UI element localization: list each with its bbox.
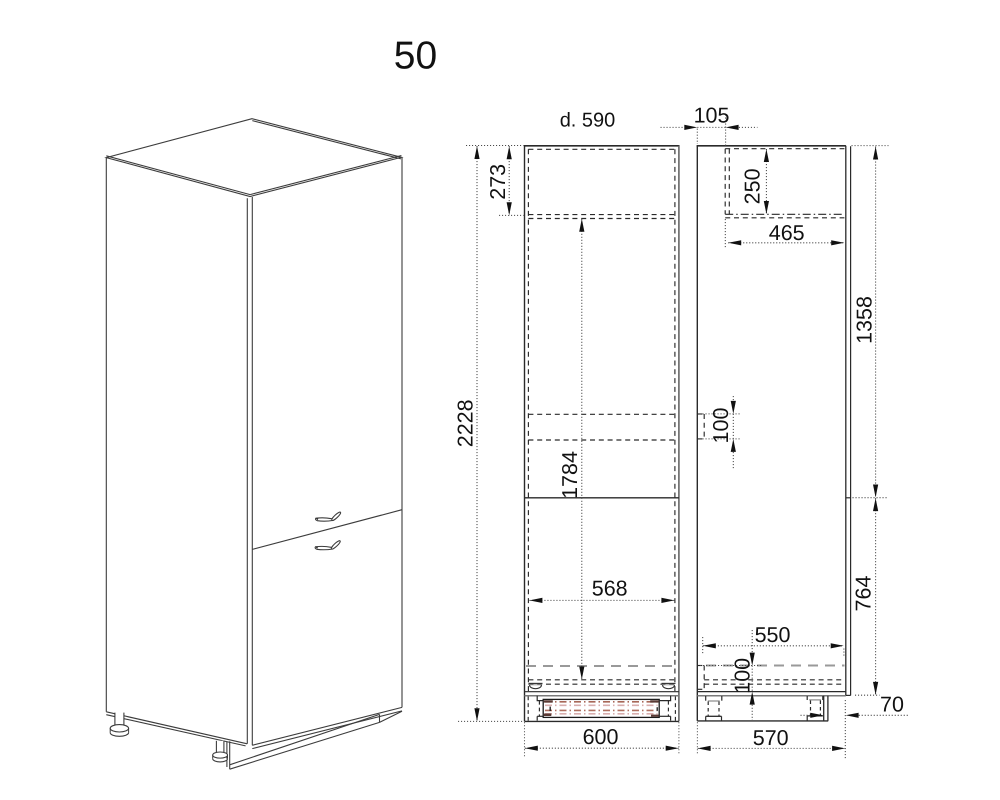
svg-text:1358: 1358	[853, 296, 877, 344]
svg-text:100: 100	[709, 408, 733, 444]
svg-text:1784: 1784	[558, 451, 582, 499]
svg-text:100: 100	[731, 658, 755, 694]
svg-text:250: 250	[740, 168, 764, 204]
svg-text:764: 764	[852, 576, 876, 612]
svg-text:50: 50	[394, 35, 437, 78]
svg-text:d. 590: d. 590	[560, 110, 616, 132]
svg-text:465: 465	[769, 221, 805, 245]
svg-text:273: 273	[486, 164, 510, 200]
svg-text:550: 550	[755, 623, 791, 647]
svg-text:600: 600	[583, 725, 619, 749]
svg-text:2228: 2228	[453, 399, 477, 447]
svg-text:570: 570	[753, 726, 789, 750]
svg-text:70: 70	[880, 693, 904, 717]
svg-text:105: 105	[694, 104, 730, 128]
svg-text:568: 568	[592, 577, 628, 601]
